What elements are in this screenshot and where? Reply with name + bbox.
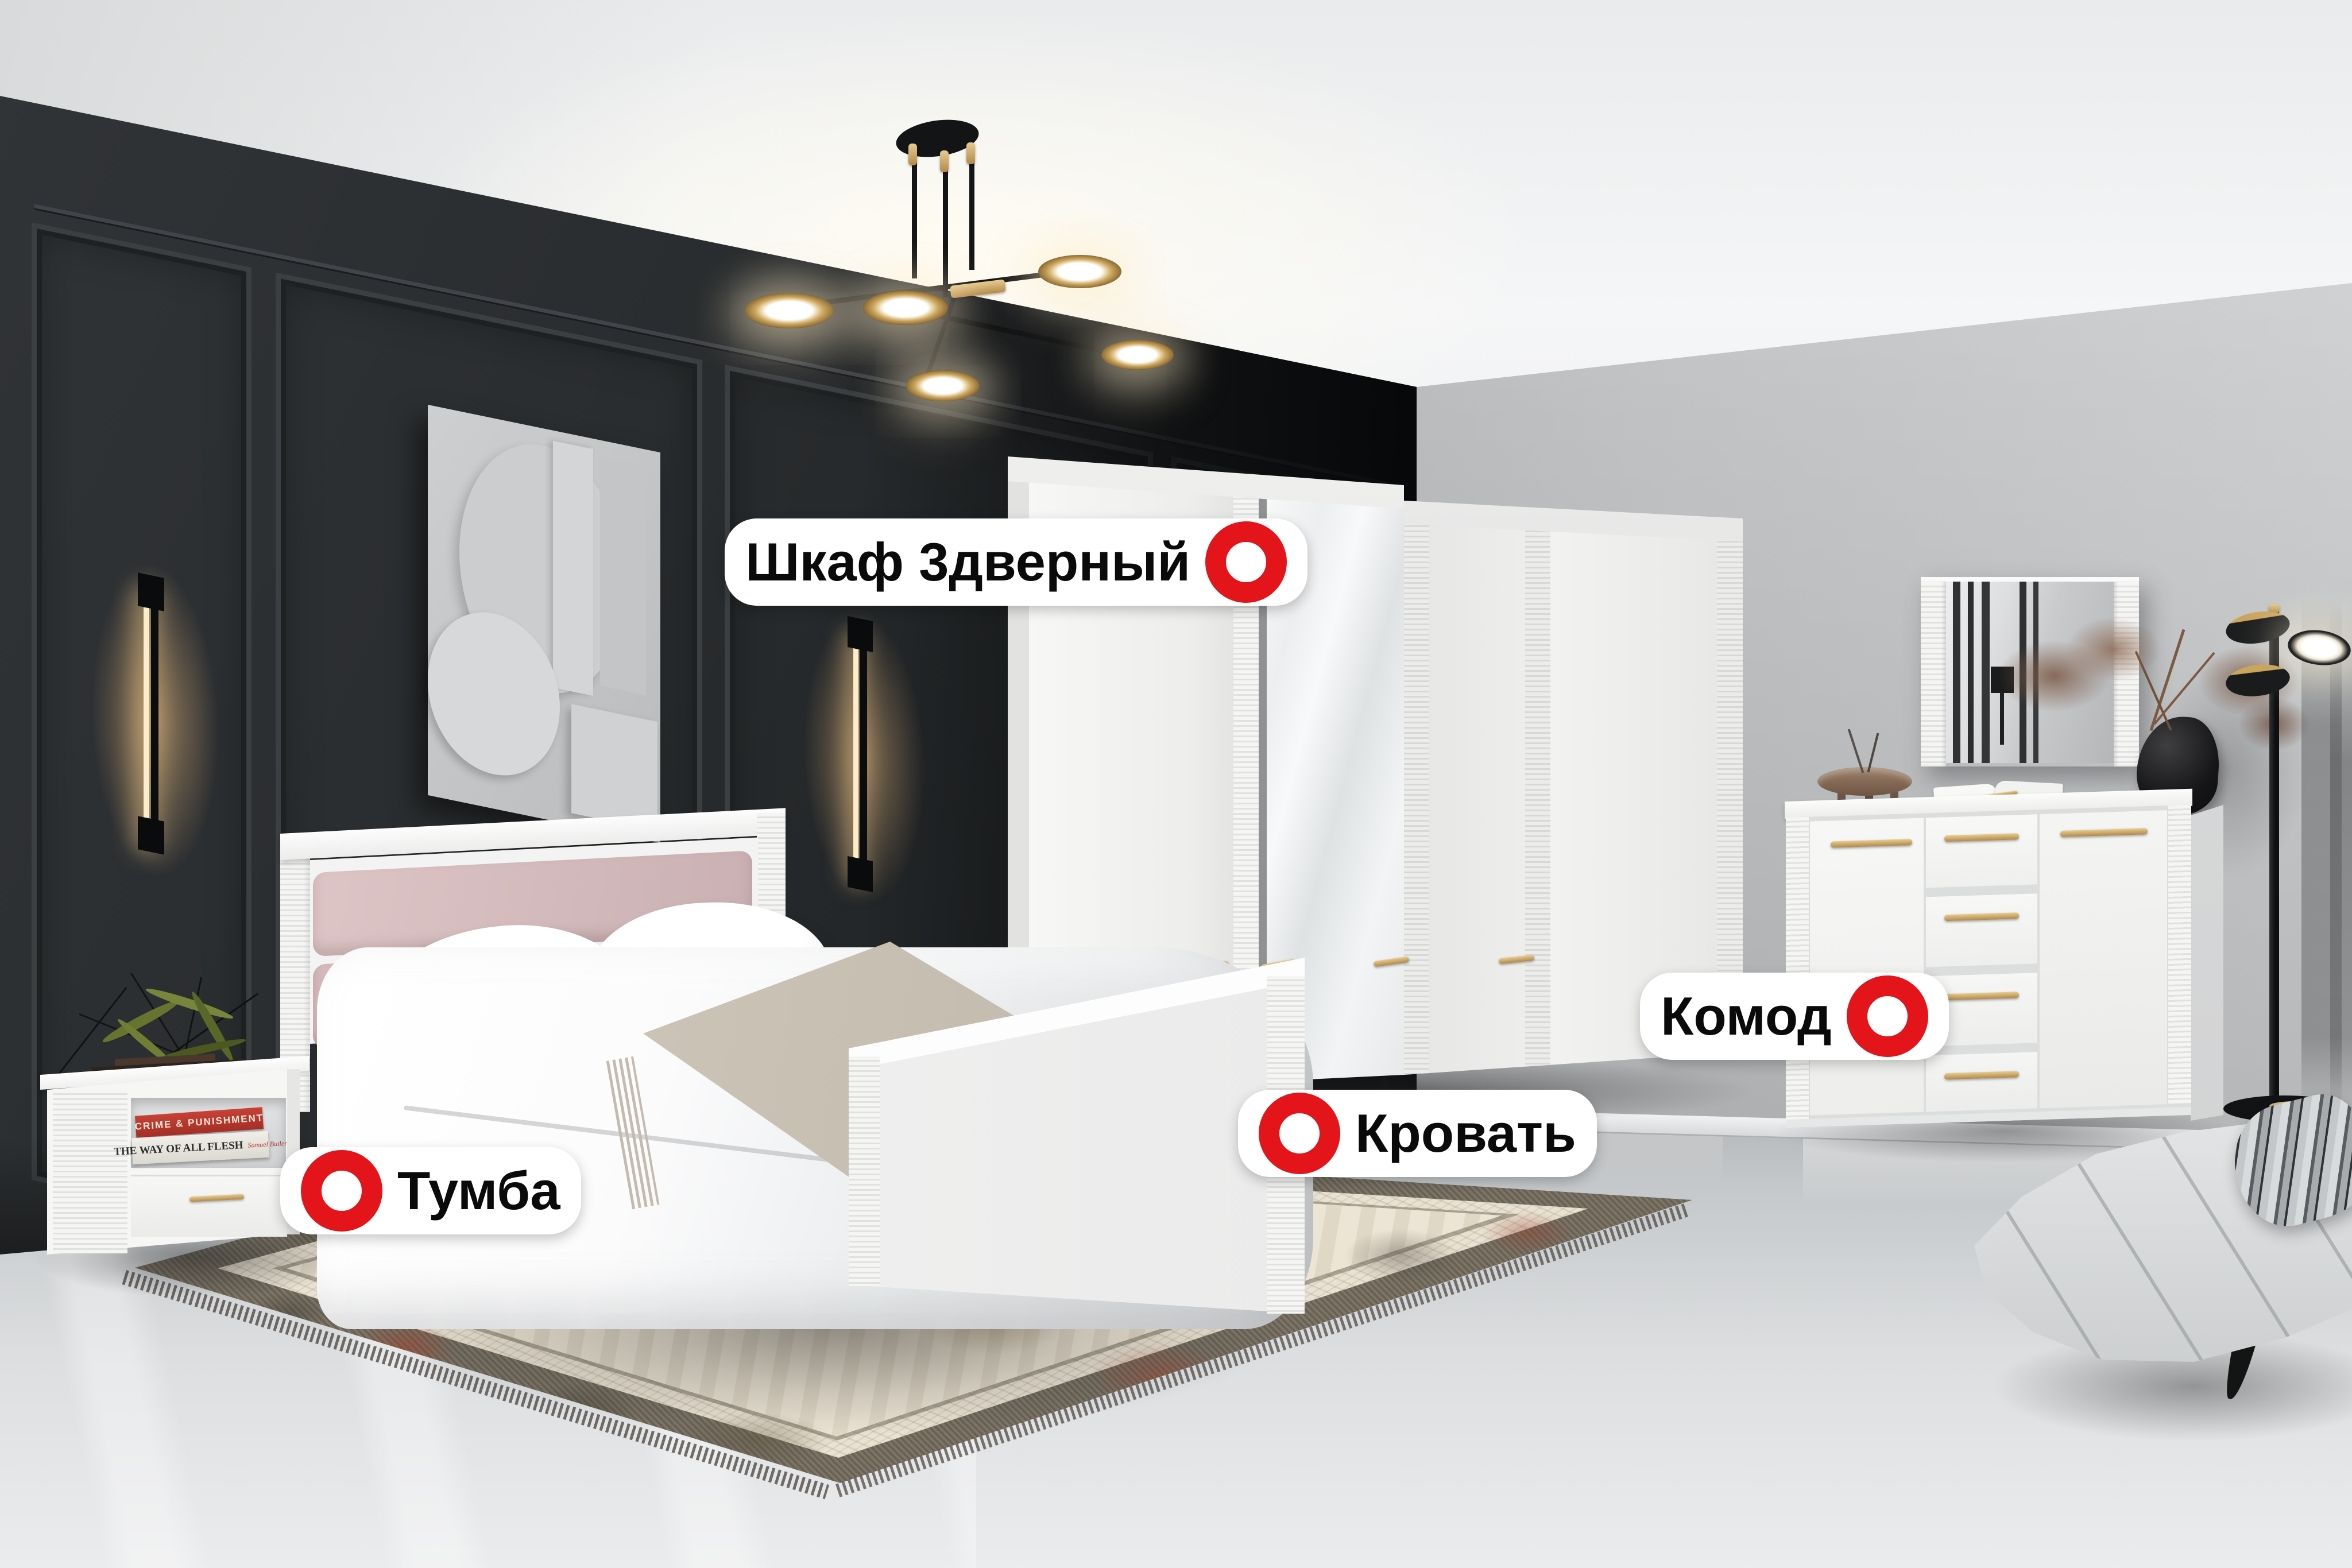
hotspot-label-wardrobe[interactable]: Шкаф 3дверный <box>725 518 1307 606</box>
hotspot-label-dresser-text: Комод <box>1661 985 1832 1047</box>
bench-seat <box>0 0 2352 1568</box>
bedroom-scene: CRIME & PUNISHMENT THE WAY OF ALL FLESH … <box>0 0 2352 1568</box>
hotspot-marker-dresser[interactable] <box>1847 975 1928 1057</box>
hotspot-marker-wardrobe[interactable] <box>1205 521 1287 603</box>
hotspot-label-bed[interactable]: Кровать <box>1238 1090 1597 1177</box>
hotspot-marker-bed[interactable] <box>1259 1093 1340 1174</box>
bench <box>0 0 2352 1568</box>
hotspot-label-dresser[interactable]: Комод <box>1640 973 1949 1060</box>
hotspot-marker-nightstand[interactable] <box>301 1150 382 1232</box>
hotspot-label-nightstand[interactable]: Тумба <box>280 1147 581 1234</box>
hotspot-label-nightstand-text: Тумба <box>397 1160 560 1222</box>
hotspot-label-wardrobe-text: Шкаф 3дверный <box>745 531 1190 593</box>
hotspot-label-bed-text: Кровать <box>1355 1102 1576 1164</box>
